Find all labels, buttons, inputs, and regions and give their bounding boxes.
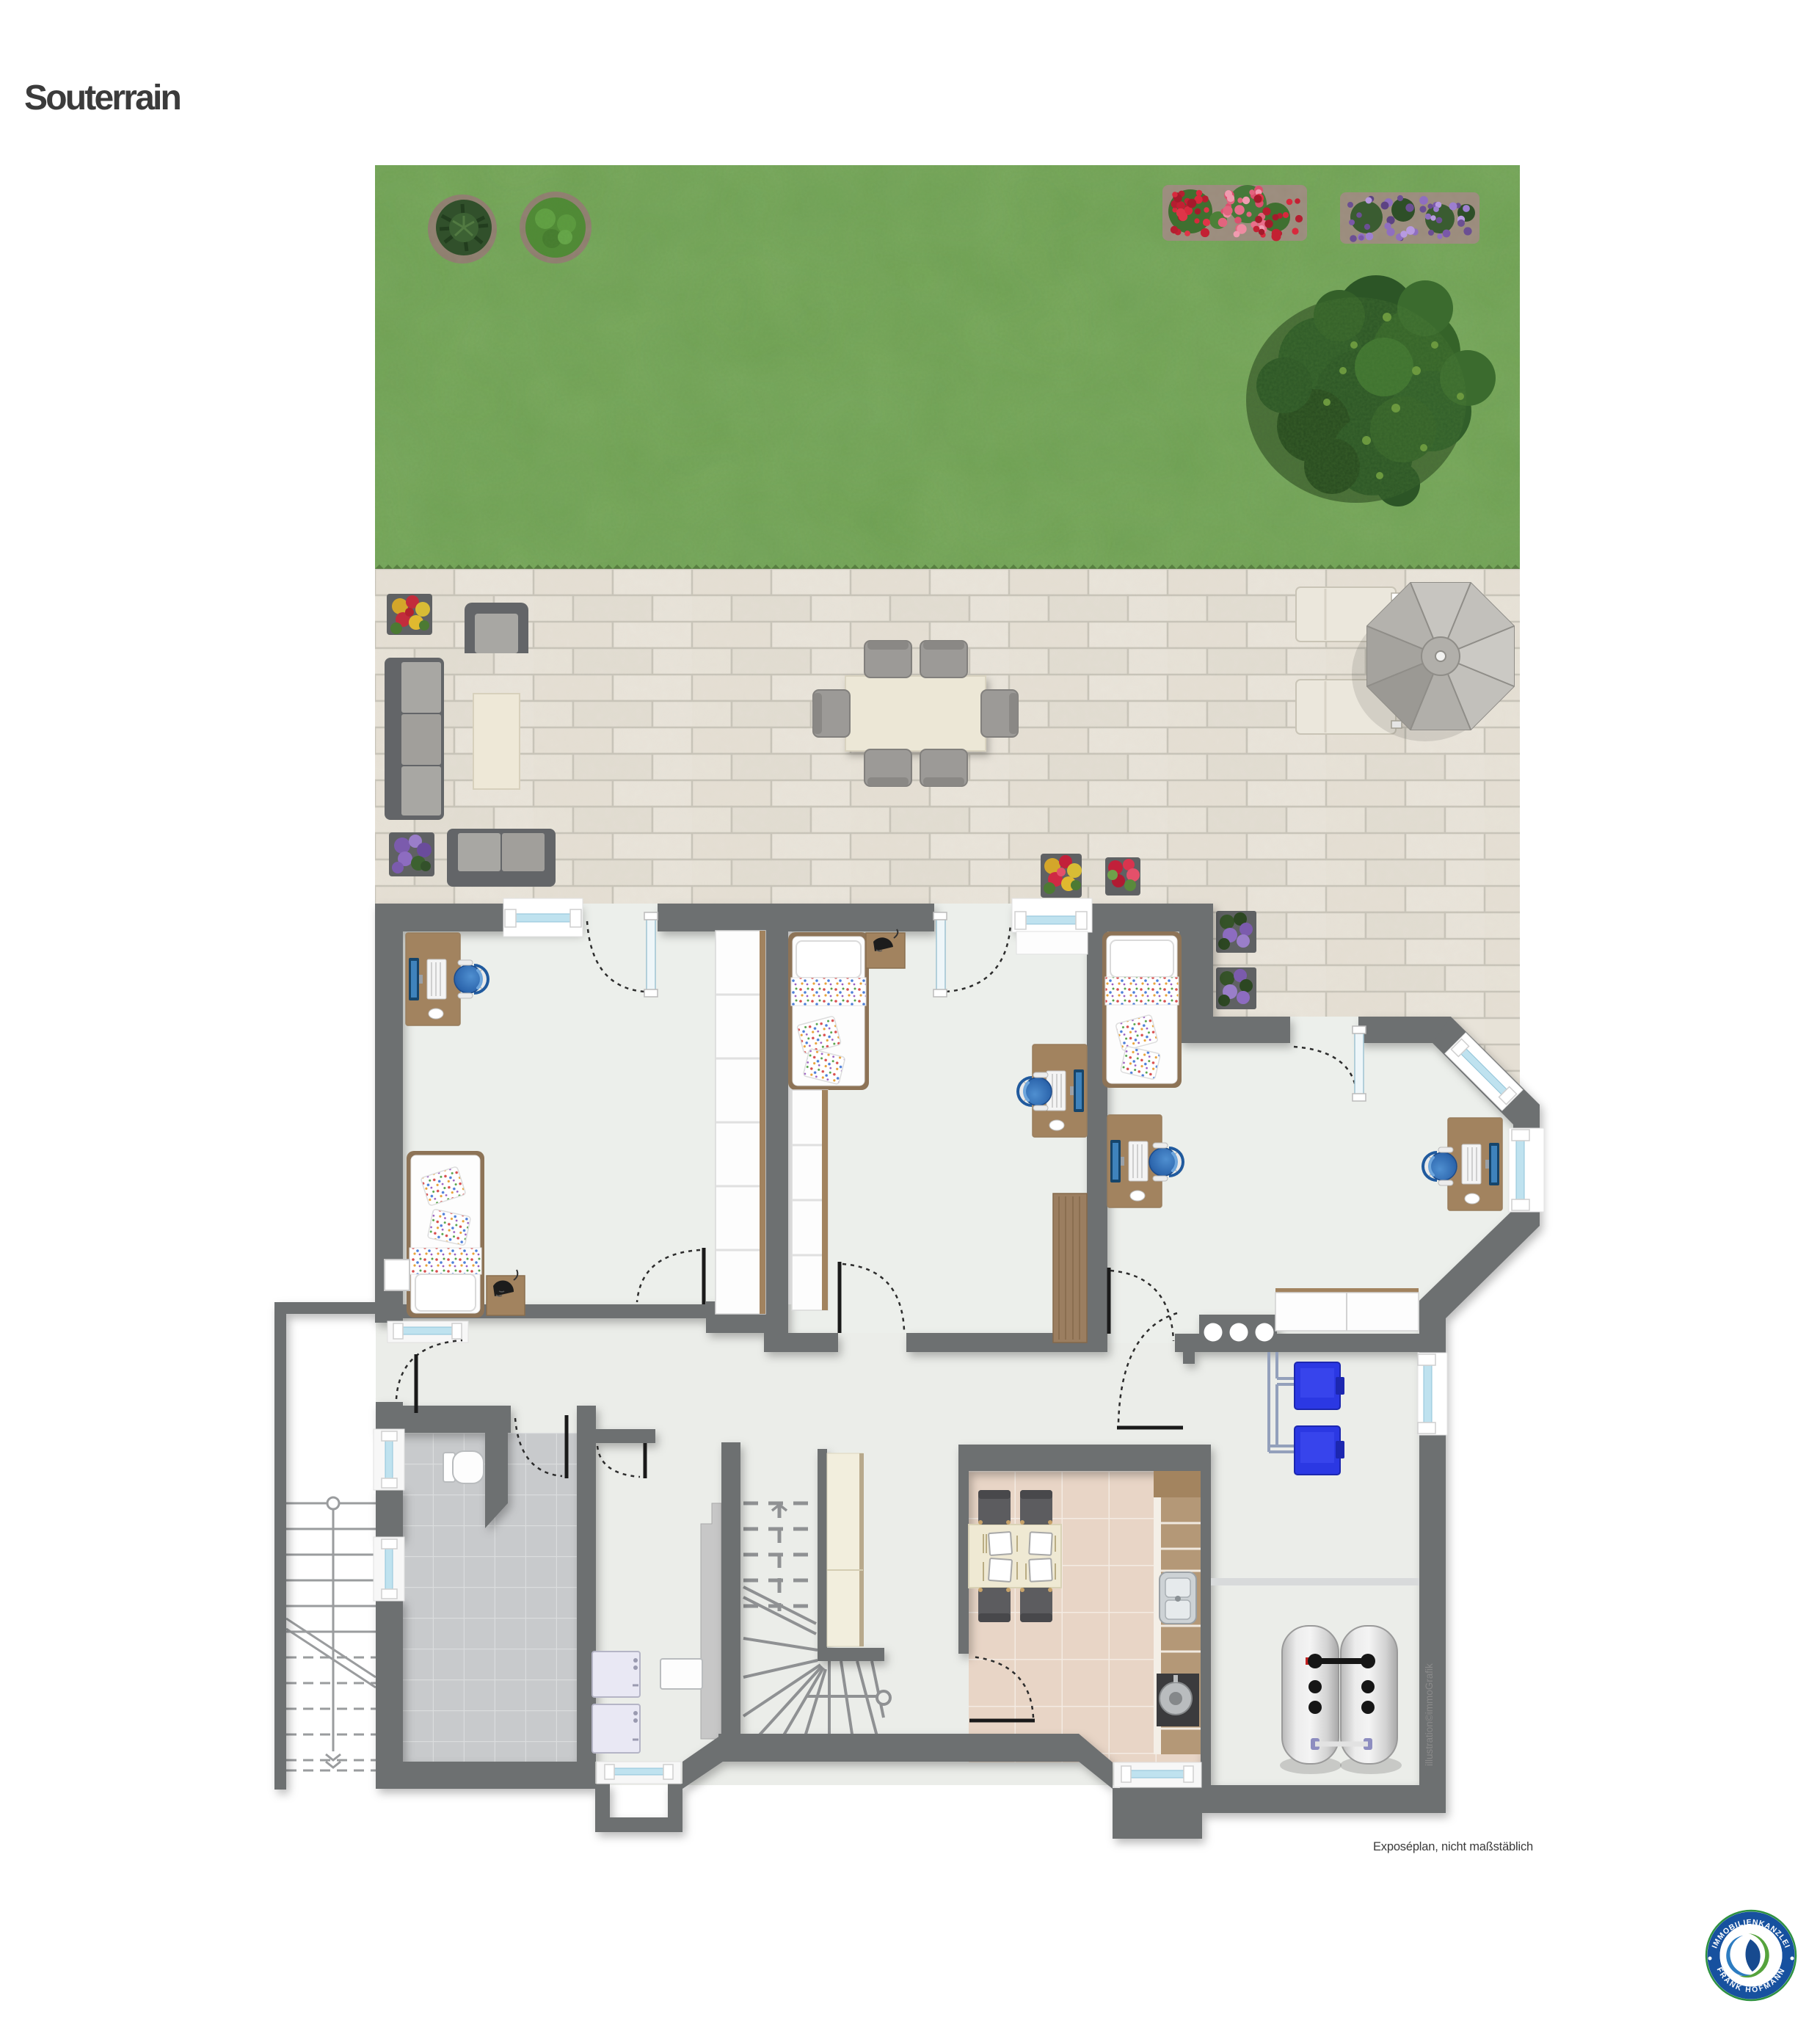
svg-text:illustration©immoGrafik: illustration©immoGrafik	[1424, 1663, 1435, 1766]
svg-text:Souterrain: Souterrain	[24, 79, 181, 117]
svg-text:Exposéplan, nicht maßstäblich: Exposéplan, nicht maßstäblich	[1373, 1840, 1533, 1853]
